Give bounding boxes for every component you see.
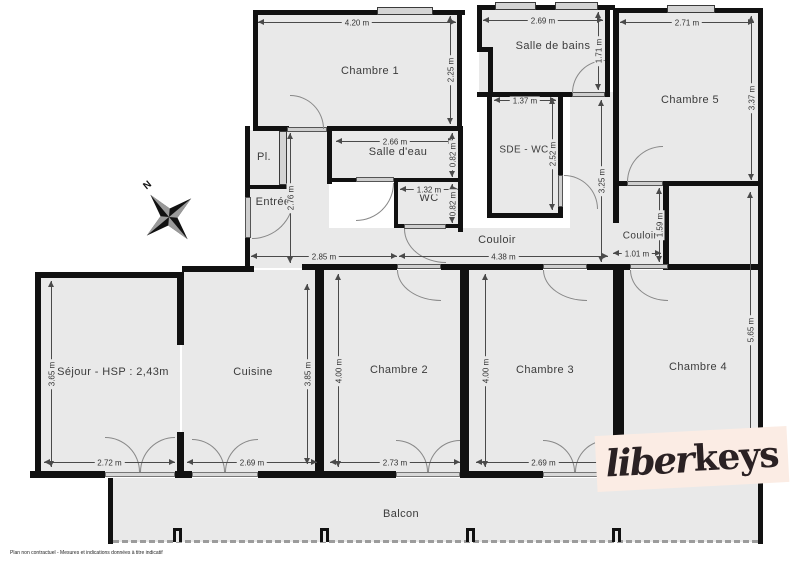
wall bbox=[253, 10, 258, 131]
dim-chambre3-height: 4.00 m bbox=[485, 274, 486, 467]
wall bbox=[394, 178, 462, 182]
wall bbox=[663, 181, 763, 186]
dim-chambre1-height: 2.25 m bbox=[450, 16, 451, 124]
room-label-chambre-2: Chambre 2 bbox=[370, 364, 428, 376]
wall bbox=[457, 10, 462, 131]
wall bbox=[315, 266, 324, 478]
balcony-post bbox=[320, 528, 329, 542]
closet-sliding-door bbox=[279, 131, 287, 185]
wall bbox=[460, 471, 543, 478]
dim-salle-deau-width: 2.66 m bbox=[336, 141, 454, 142]
room-label-chambre-1: Chambre 1 bbox=[341, 65, 399, 77]
logo-script-text: liber bbox=[604, 437, 693, 485]
wall bbox=[330, 178, 356, 182]
dim-sejour-height: 3.65 m bbox=[51, 281, 52, 467]
dim-chambre1-width: 4.20 m bbox=[258, 22, 456, 23]
dim-sejour-width: 2.72 m bbox=[44, 462, 175, 463]
door-leaf bbox=[558, 175, 563, 207]
door-leaf bbox=[356, 177, 394, 182]
logo-bold-text: keys bbox=[692, 434, 779, 480]
wall bbox=[177, 272, 184, 345]
dim-cuisine-width: 2.69 m bbox=[187, 462, 317, 463]
dim-wc-height: 0.82 m bbox=[452, 184, 453, 223]
dim-chambre4-height: 5.65 m bbox=[750, 192, 751, 468]
dim-chambre3-width: 2.69 m bbox=[476, 462, 611, 463]
room-label-chambre-4: Chambre 4 bbox=[669, 361, 727, 373]
dim-chambre5-height: 3.37 m bbox=[751, 16, 752, 180]
window bbox=[495, 2, 536, 10]
liberkeys-logo: liberkeys bbox=[595, 426, 790, 492]
dim-couloir2-width: 1.01 m bbox=[613, 253, 661, 254]
wall bbox=[441, 264, 543, 270]
dim-chambre2-width: 2.73 m bbox=[330, 462, 460, 463]
room-fill-chambre-4-upper bbox=[667, 185, 759, 270]
balcony-post bbox=[466, 528, 475, 542]
balcony-post bbox=[612, 528, 621, 542]
room-label-salle-deau: Salle d'eau bbox=[369, 146, 428, 158]
balcony-post bbox=[173, 528, 182, 542]
wall bbox=[30, 471, 105, 478]
balcony-wall bbox=[758, 478, 763, 544]
wall bbox=[668, 264, 763, 270]
room-label-couloir-2: Couloir bbox=[623, 231, 657, 242]
wall bbox=[446, 224, 462, 228]
wall bbox=[488, 47, 493, 92]
wall bbox=[613, 8, 619, 223]
room-label-placard: Pl. bbox=[257, 151, 271, 163]
window bbox=[377, 7, 433, 15]
dim-salle-de-bains-width: 2.69 m bbox=[483, 20, 603, 21]
dim-sde-wc-height: 2.52 m bbox=[552, 98, 553, 210]
wall bbox=[458, 126, 463, 232]
room-label-balcon: Balcon bbox=[383, 508, 419, 520]
room-label-salle-de-bains: Salle de bains bbox=[516, 40, 591, 52]
wall bbox=[330, 126, 462, 131]
door-sill bbox=[105, 472, 175, 477]
wall bbox=[35, 272, 182, 278]
dim-entree-height: 2.76 m bbox=[290, 133, 291, 263]
room-label-entree: Entrée bbox=[256, 196, 291, 208]
floor-plan: Chambre 1 Salle de bains Chambre 5 Pl. S… bbox=[0, 0, 800, 566]
door-sill bbox=[396, 472, 460, 477]
door-leaf bbox=[397, 264, 441, 269]
wall bbox=[35, 272, 41, 478]
door-leaf bbox=[543, 264, 587, 269]
wall bbox=[487, 92, 492, 218]
wall bbox=[605, 5, 610, 97]
compass-rose: N bbox=[138, 186, 200, 248]
room-fill-passage bbox=[570, 92, 615, 230]
compass-icon bbox=[125, 173, 212, 260]
wall bbox=[477, 5, 482, 52]
balcony-wall bbox=[108, 478, 113, 544]
wall bbox=[394, 182, 398, 228]
dim-cuisine-height: 3.85 m bbox=[307, 284, 308, 464]
door-sill bbox=[192, 472, 258, 477]
room-label-couloir: Couloir bbox=[478, 234, 516, 246]
room-label-chambre-5: Chambre 5 bbox=[661, 94, 719, 106]
wall bbox=[182, 266, 254, 272]
wall bbox=[327, 126, 332, 184]
wall bbox=[460, 266, 469, 478]
room-label-sejour: Séjour - HSP : 2,43m bbox=[57, 366, 169, 378]
room-label-chambre-3: Chambre 3 bbox=[516, 364, 574, 376]
wall bbox=[487, 213, 563, 218]
disclaimer-text: Plan non contractuel - Mesures et indica… bbox=[10, 550, 163, 556]
window bbox=[555, 2, 598, 10]
wall bbox=[558, 92, 563, 175]
wall bbox=[175, 471, 192, 478]
dim-chambre2-height: 4.00 m bbox=[338, 274, 339, 467]
room-label-cuisine: Cuisine bbox=[233, 366, 273, 378]
dim-chambre5-width: 2.71 m bbox=[620, 22, 754, 23]
balcony-railing bbox=[113, 540, 758, 543]
door-leaf bbox=[630, 264, 668, 269]
door-arc bbox=[356, 183, 394, 221]
wall bbox=[758, 8, 763, 188]
dim-salle-de-bains-height: 1.71 m bbox=[598, 12, 599, 90]
dim-couloir-left: 2.85 m bbox=[251, 256, 397, 257]
dim-sde-wc-width: 1.37 m bbox=[494, 100, 556, 101]
dim-couloir-right: 4.38 m bbox=[399, 256, 608, 257]
dim-passage-height: 3.25 m bbox=[601, 100, 602, 262]
dim-salle-deau-height: 0.82 m bbox=[452, 133, 453, 177]
window bbox=[667, 5, 715, 13]
wall bbox=[394, 224, 404, 228]
entrance-door-leaf bbox=[245, 197, 251, 238]
wall bbox=[613, 181, 627, 186]
wall bbox=[258, 471, 396, 478]
wall bbox=[253, 10, 465, 15]
room-label-sde-wc: SDE - WC bbox=[499, 145, 548, 156]
